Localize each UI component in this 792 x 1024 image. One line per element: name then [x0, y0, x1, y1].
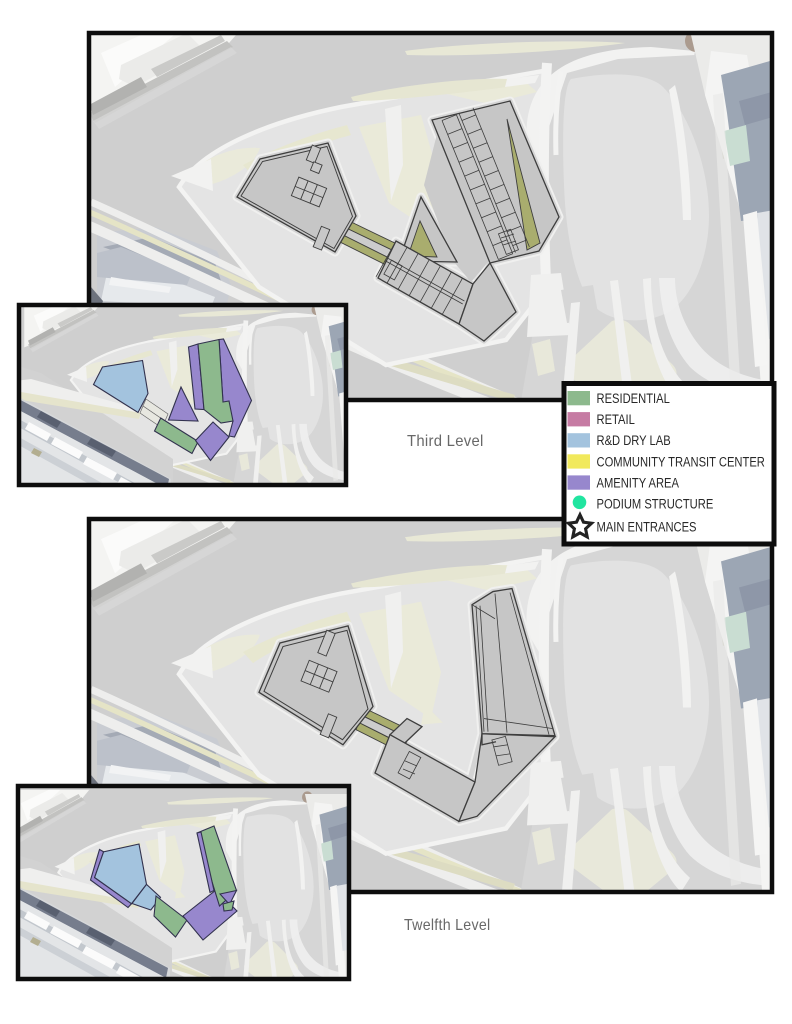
svg-text:PODIUM STRUCTURE: PODIUM STRUCTURE: [597, 496, 714, 511]
svg-text:COMMUNITY TRANSIT CENTER: COMMUNITY TRANSIT CENTER: [597, 454, 765, 469]
svg-text:AMENITY AREA: AMENITY AREA: [597, 475, 680, 490]
svg-text:RETAIL: RETAIL: [597, 412, 635, 427]
svg-text:MAIN ENTRANCES: MAIN ENTRANCES: [597, 519, 697, 534]
svg-text:R&D DRY LAB: R&D DRY LAB: [597, 433, 671, 448]
svg-text:RESIDENTIAL: RESIDENTIAL: [597, 391, 670, 406]
svg-text:Twelfth Level: Twelfth Level: [404, 916, 490, 934]
svg-text:Third Level: Third Level: [407, 433, 484, 451]
